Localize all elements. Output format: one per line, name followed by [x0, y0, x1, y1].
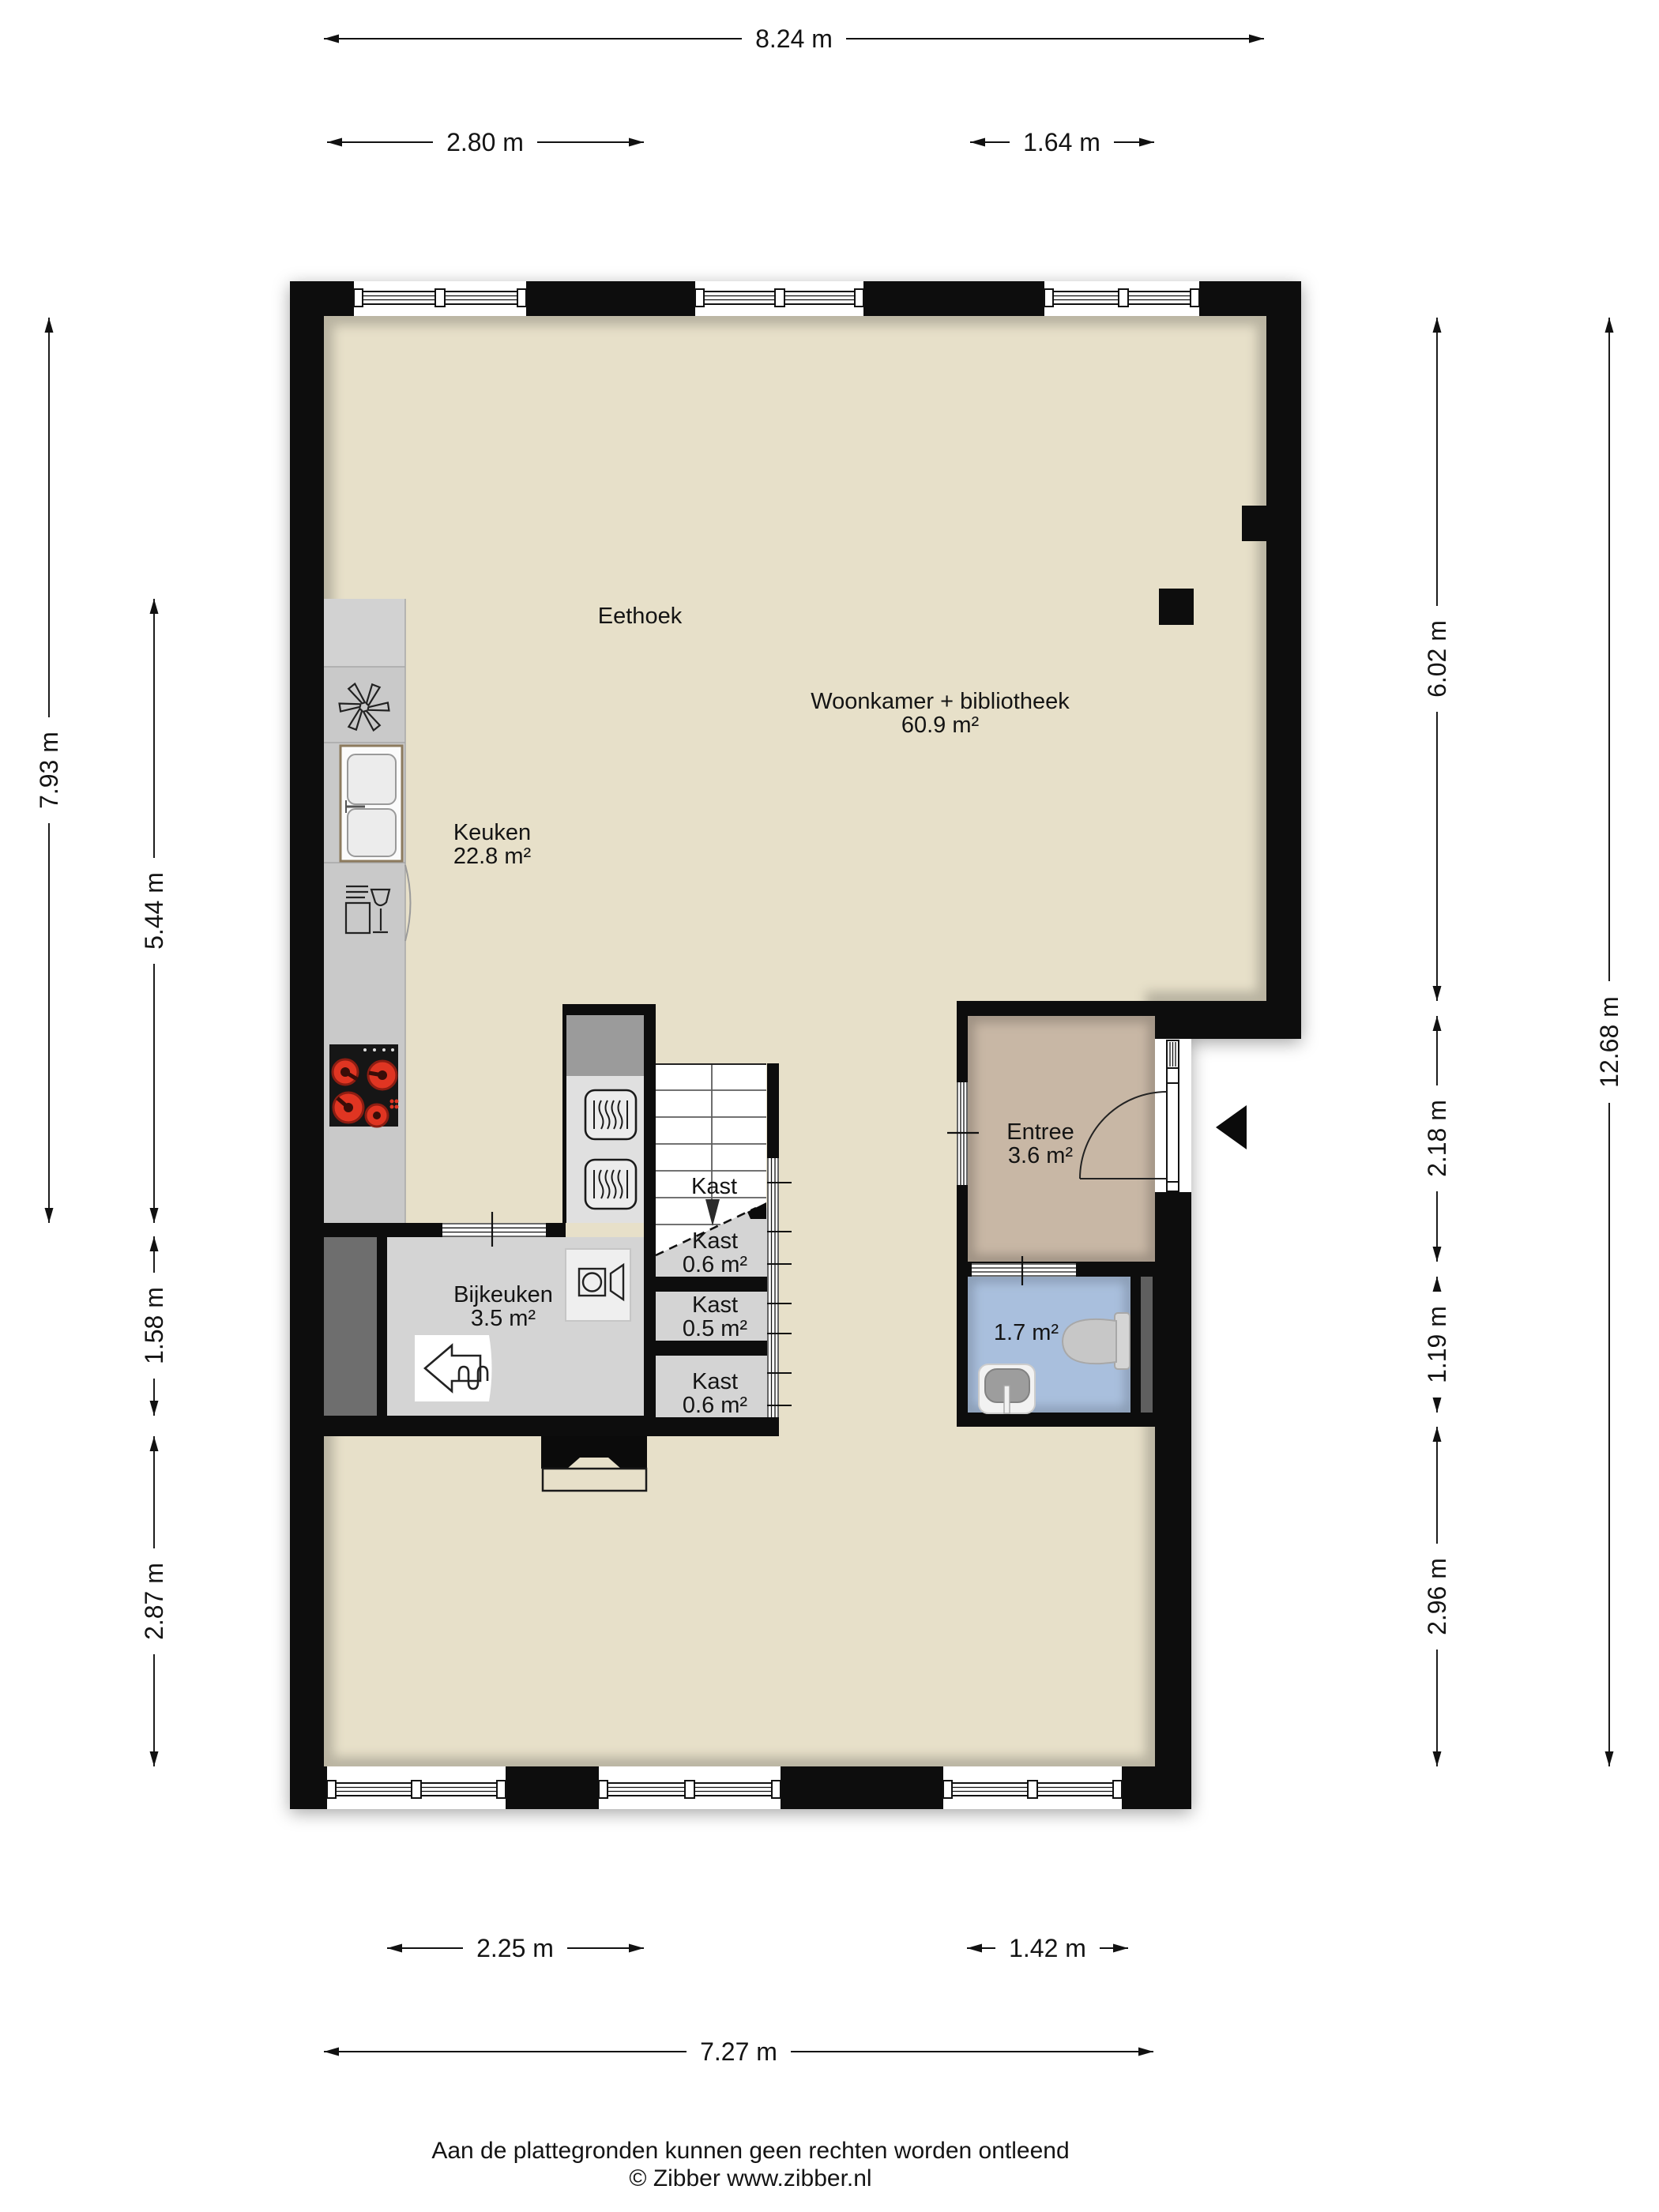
svg-text:22.8 m²: 22.8 m²	[453, 844, 532, 869]
svg-text:60.9 m²: 60.9 m²	[901, 713, 980, 738]
svg-text:3.6 m²: 3.6 m²	[1008, 1143, 1074, 1168]
svg-text:0.6 m²: 0.6 m²	[683, 1252, 748, 1277]
svg-text:1.58 m: 1.58 m	[140, 1287, 168, 1364]
svg-text:2.96 m: 2.96 m	[1423, 1558, 1451, 1635]
svg-text:6.02 m: 6.02 m	[1423, 620, 1451, 698]
svg-text:12.68 m: 12.68 m	[1595, 996, 1623, 1088]
svg-text:7.27 m: 7.27 m	[700, 2037, 777, 2066]
svg-text:5.44 m: 5.44 m	[140, 872, 168, 950]
svg-text:8.24 m: 8.24 m	[755, 24, 833, 53]
svg-text:Kast: Kast	[692, 1369, 738, 1394]
svg-text:1.64 m: 1.64 m	[1023, 128, 1100, 156]
svg-text:Entree: Entree	[1006, 1119, 1074, 1145]
svg-text:2.18 m: 2.18 m	[1423, 1100, 1451, 1177]
svg-text:Kast: Kast	[691, 1174, 737, 1199]
svg-text:2.25 m: 2.25 m	[476, 1934, 554, 1962]
svg-text:Kast: Kast	[692, 1228, 738, 1254]
svg-text:Eethoek: Eethoek	[598, 604, 683, 629]
svg-text:Bijkeuken: Bijkeuken	[453, 1282, 553, 1307]
svg-text:2.80 m: 2.80 m	[446, 128, 524, 156]
svg-text:1.42 m: 1.42 m	[1009, 1934, 1086, 1962]
svg-text:Keuken: Keuken	[453, 820, 531, 845]
svg-text:2.87 m: 2.87 m	[140, 1563, 168, 1640]
svg-text:1.7 m²: 1.7 m²	[994, 1320, 1059, 1345]
svg-text:0.6 m²: 0.6 m²	[683, 1393, 748, 1418]
svg-text:Aan de plattegronden kunnen ge: Aan de plattegronden kunnen geen rechten…	[431, 2138, 1069, 2164]
svg-text:7.93 m: 7.93 m	[35, 732, 63, 809]
svg-text:© Zibber www.zibber.nl: © Zibber www.zibber.nl	[629, 2165, 871, 2191]
svg-text:1.19 m: 1.19 m	[1423, 1306, 1451, 1383]
svg-text:0.5 m²: 0.5 m²	[683, 1316, 748, 1341]
svg-text:Woonkamer + bibliotheek: Woonkamer + bibliotheek	[811, 689, 1070, 714]
svg-text:Kast: Kast	[692, 1292, 738, 1318]
svg-text:3.5 m²: 3.5 m²	[471, 1306, 536, 1331]
